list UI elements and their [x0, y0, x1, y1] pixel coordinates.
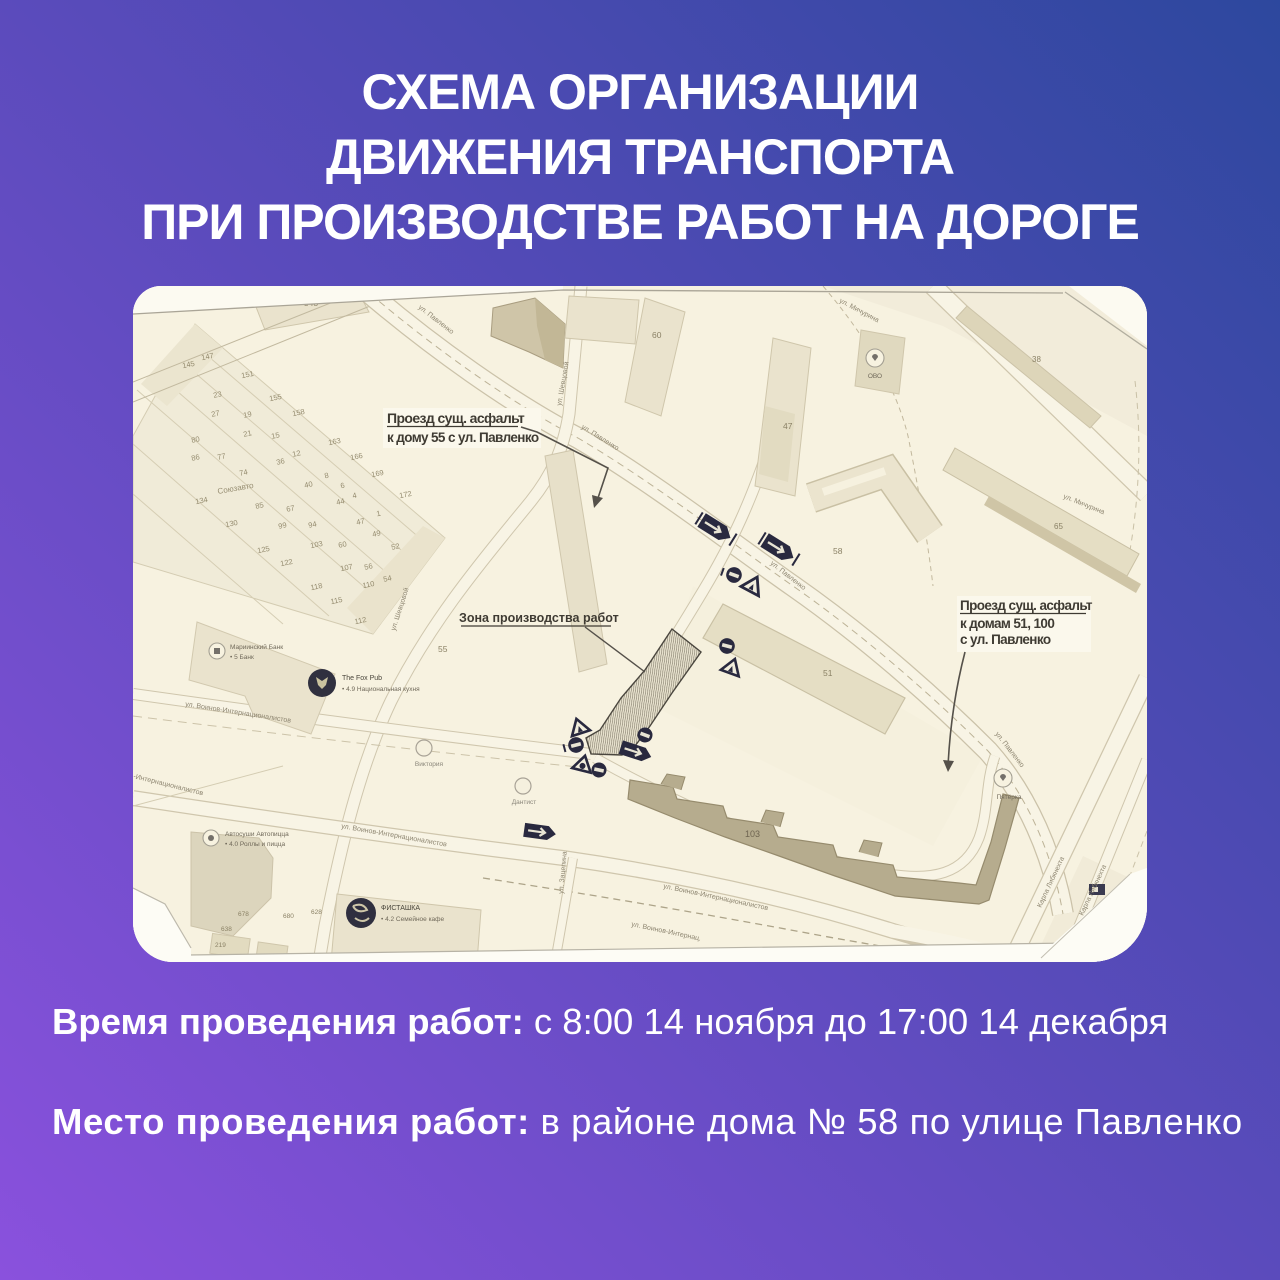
svg-text:60: 60	[652, 330, 662, 340]
svg-text:• 4.2 Семейное кафе: • 4.2 Семейное кафе	[381, 915, 445, 923]
svg-text:Мариинский Банк: Мариинский Банк	[230, 643, 283, 651]
svg-text:ФИСТАШКА: ФИСТАШКА	[381, 905, 420, 912]
svg-text:к домам 51, 100: к домам 51, 100	[960, 616, 1054, 631]
svg-text:51: 51	[823, 668, 833, 678]
svg-text:638: 638	[221, 926, 232, 933]
svg-text:к дому 55 с ул. Павленко: к дому 55 с ул. Павленко	[387, 430, 539, 445]
svg-text:47: 47	[783, 421, 793, 431]
svg-text:219: 219	[215, 942, 226, 949]
svg-text:• 5 Банк: • 5 Банк	[230, 654, 254, 661]
svg-text:38: 38	[1032, 355, 1041, 364]
svg-text:Дантист: Дантист	[512, 799, 536, 806]
svg-text:• 4.0 Роллы и пицца: • 4.0 Роллы и пицца	[225, 841, 286, 848]
svg-text:• 4.9 Национальная кухня: • 4.9 Национальная кухня	[342, 686, 420, 693]
svg-text:58: 58	[833, 546, 843, 556]
svg-text:Проезд сущ. асфальт: Проезд сущ. асфальт	[387, 410, 525, 426]
svg-text:65: 65	[1054, 522, 1063, 531]
svg-text:The Fox Pub: The Fox Pub	[342, 675, 382, 682]
svg-text:ОВО: ОВО	[868, 373, 882, 380]
svg-text:Виктория: Виктория	[415, 761, 444, 768]
svg-text:Пятёрка: Пятёрка	[996, 794, 1021, 801]
svg-text:628: 628	[311, 909, 322, 916]
svg-text:Зона производства работ: Зона производства работ	[459, 611, 619, 625]
svg-text:55: 55	[438, 644, 448, 654]
svg-text:678: 678	[238, 911, 249, 918]
svg-text:680: 680	[283, 913, 294, 920]
svg-text:с ул. Павленко: с ул. Павленко	[960, 632, 1051, 647]
svg-text:103: 103	[745, 829, 760, 839]
svg-text:Проезд сущ. асфальт: Проезд сущ. асфальт	[960, 598, 1093, 613]
svg-text:Автосуши Автопицца: Автосуши Автопицца	[225, 831, 289, 838]
